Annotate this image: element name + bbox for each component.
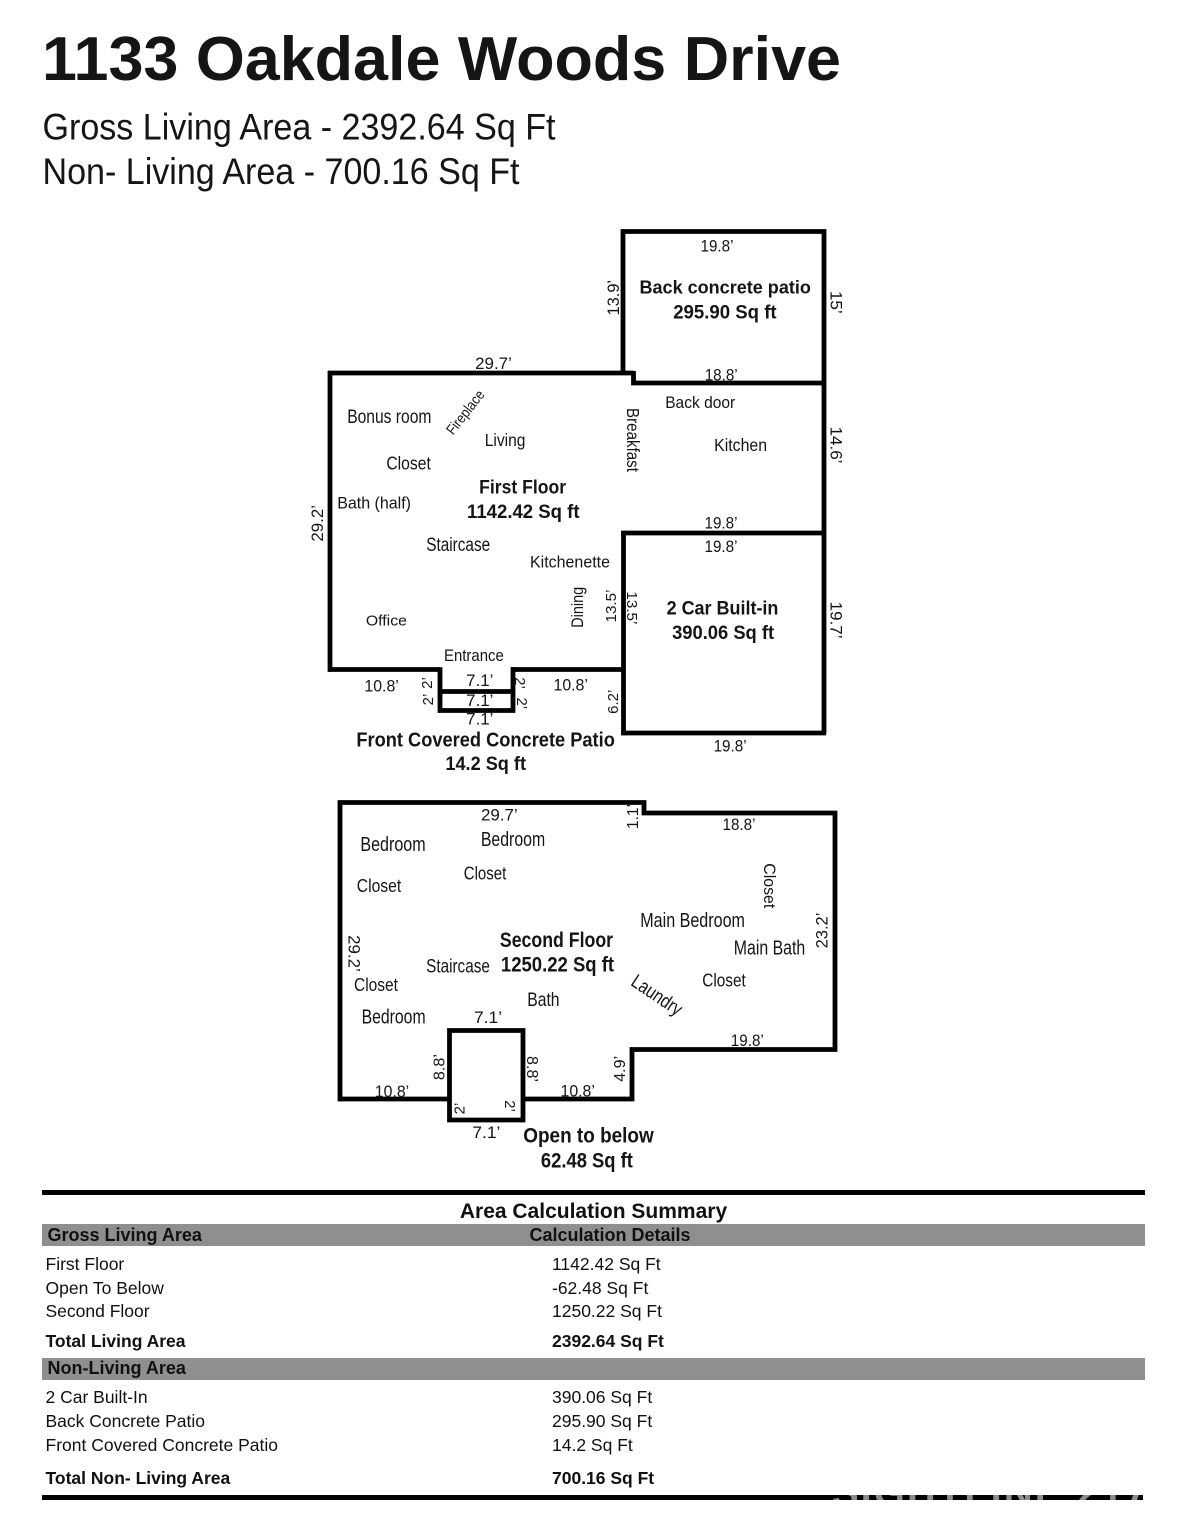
svg-text:Main Bath: Main Bath: [734, 938, 805, 960]
svg-text:18.8’: 18.8’: [705, 366, 738, 385]
svg-text:62.48 Sq ft: 62.48 Sq ft: [541, 1149, 633, 1172]
svg-text:7.1’: 7.1’: [466, 711, 493, 729]
svg-text:29.7’: 29.7’: [481, 805, 518, 824]
svg-text:6.2’: 6.2’: [605, 690, 622, 714]
svg-text:Kitchenette: Kitchenette: [530, 552, 610, 571]
svg-text:Bedroom: Bedroom: [481, 828, 545, 851]
svg-text:Non- Living Area - 700.16 Sq F: Non- Living Area - 700.16 Sq Ft: [43, 150, 521, 192]
svg-text:29.2’: 29.2’: [345, 935, 364, 972]
svg-text:Laundry: Laundry: [627, 970, 687, 1020]
svg-text:2’: 2’: [501, 1100, 518, 1112]
svg-text:1142.42 Sq ft: 1142.42 Sq ft: [467, 501, 580, 523]
svg-text:18.8’: 18.8’: [723, 815, 756, 834]
svg-text:13.5’: 13.5’: [603, 590, 620, 623]
svg-text:Staircase: Staircase: [426, 956, 490, 978]
svg-text:14.6’: 14.6’: [827, 427, 846, 464]
svg-text:Closet: Closet: [702, 970, 746, 990]
svg-text:Staircase: Staircase: [426, 535, 490, 556]
svg-text:Back concrete patio: Back concrete patio: [640, 277, 811, 298]
svg-text:14.2 Sq ft: 14.2 Sq ft: [445, 753, 526, 775]
svg-text:7.1’: 7.1’: [466, 692, 493, 710]
svg-text:2 Car Built-in: 2 Car Built-in: [667, 598, 779, 619]
svg-text:19.8’: 19.8’: [714, 737, 747, 756]
svg-text:390.06 Sq ft: 390.06 Sq ft: [672, 623, 775, 644]
svg-text:Bedroom: Bedroom: [360, 833, 425, 856]
svg-text:Closet: Closet: [357, 876, 401, 896]
svg-text:Closet: Closet: [386, 453, 431, 474]
svg-text:Closet: Closet: [760, 863, 779, 908]
svg-text:29.2’: 29.2’: [308, 505, 327, 542]
svg-text:Fireplace: Fireplace: [444, 387, 489, 438]
svg-text:Office: Office: [366, 612, 407, 629]
svg-text:Closet: Closet: [354, 975, 398, 995]
svg-text:4.9’: 4.9’: [612, 1056, 629, 1082]
svg-text:1250.22 Sq ft: 1250.22 Sq ft: [501, 954, 614, 977]
svg-text:Gross Living Area - 2392.64 Sq: Gross Living Area - 2392.64 Sq Ft: [43, 105, 557, 147]
svg-text:Dining: Dining: [568, 587, 587, 628]
svg-text:Open to below: Open to below: [523, 1125, 654, 1148]
svg-text:Main Bedroom: Main Bedroom: [640, 910, 745, 932]
svg-text:Second Floor: Second Floor: [500, 929, 613, 952]
svg-text:19.8’: 19.8’: [705, 537, 738, 556]
svg-text:7.1’: 7.1’: [466, 672, 493, 690]
svg-text:Front Covered Concrete Patio: Front Covered Concrete Patio: [356, 729, 615, 751]
svg-text:Bath: Bath: [527, 989, 559, 1011]
svg-text:1.1’: 1.1’: [625, 804, 642, 829]
svg-text:Closet: Closet: [464, 864, 507, 884]
svg-text:29.7’: 29.7’: [475, 354, 512, 373]
svg-text:1133 Oakdale Woods Drive: 1133 Oakdale Woods Drive: [42, 25, 841, 94]
svg-text:Kitchen: Kitchen: [714, 436, 767, 455]
svg-text:19.8’: 19.8’: [701, 236, 734, 255]
svg-text:19.8’: 19.8’: [731, 1031, 764, 1050]
svg-text:2’: 2’: [451, 1103, 468, 1115]
svg-text:Breakfast: Breakfast: [623, 408, 643, 472]
svg-text:7.1’: 7.1’: [472, 1123, 500, 1142]
svg-text:Living: Living: [485, 430, 526, 450]
svg-text:10.8’: 10.8’: [375, 1083, 409, 1101]
svg-text:2’: 2’: [511, 677, 528, 689]
svg-text:Bedroom: Bedroom: [362, 1005, 426, 1028]
svg-text:7.1’: 7.1’: [474, 1008, 502, 1027]
svg-text:295.90 Sq ft: 295.90 Sq ft: [673, 302, 777, 324]
svg-text:15’: 15’: [827, 291, 846, 314]
svg-text:19.7’: 19.7’: [826, 602, 845, 639]
svg-text:10.8’: 10.8’: [364, 678, 398, 696]
svg-text:Bonus room: Bonus room: [347, 406, 431, 428]
svg-text:Entrance: Entrance: [444, 647, 504, 665]
svg-text:13.5’: 13.5’: [623, 591, 640, 624]
svg-text:8.8’: 8.8’: [523, 1056, 540, 1082]
svg-text:First Floor: First Floor: [479, 478, 566, 499]
svg-text:10.8’: 10.8’: [554, 677, 588, 695]
svg-text:2’: 2’: [419, 677, 436, 689]
svg-text:2’: 2’: [513, 697, 530, 709]
svg-text:23.2’: 23.2’: [814, 913, 832, 949]
svg-text:13.9’: 13.9’: [605, 280, 623, 316]
svg-text:Bath (half): Bath (half): [337, 494, 411, 513]
svg-text:2’: 2’: [420, 694, 437, 706]
svg-text:10.8’: 10.8’: [561, 1083, 595, 1101]
svg-text:8.8’: 8.8’: [432, 1054, 449, 1080]
svg-text:Back door: Back door: [665, 394, 736, 412]
svg-text:19.8’: 19.8’: [705, 514, 738, 533]
